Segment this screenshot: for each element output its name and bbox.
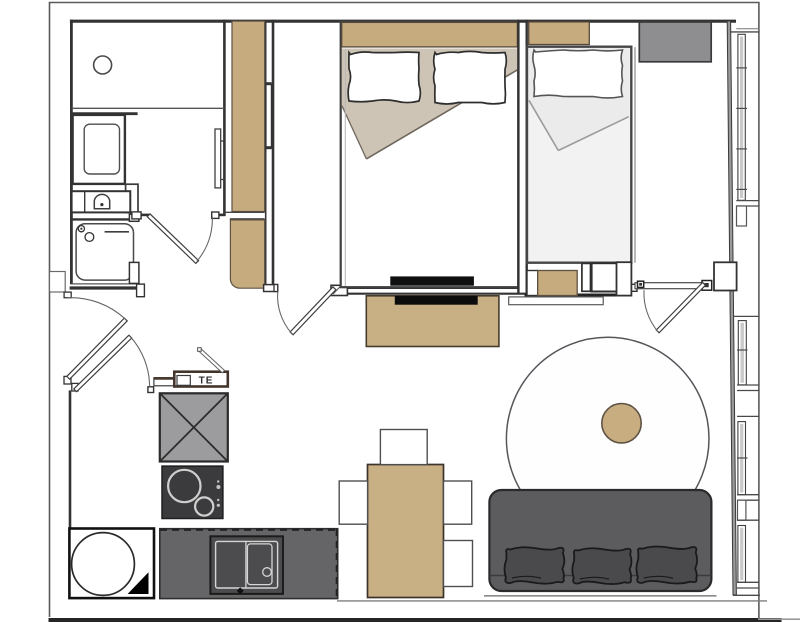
svg-text:TE: TE <box>199 376 214 387</box>
